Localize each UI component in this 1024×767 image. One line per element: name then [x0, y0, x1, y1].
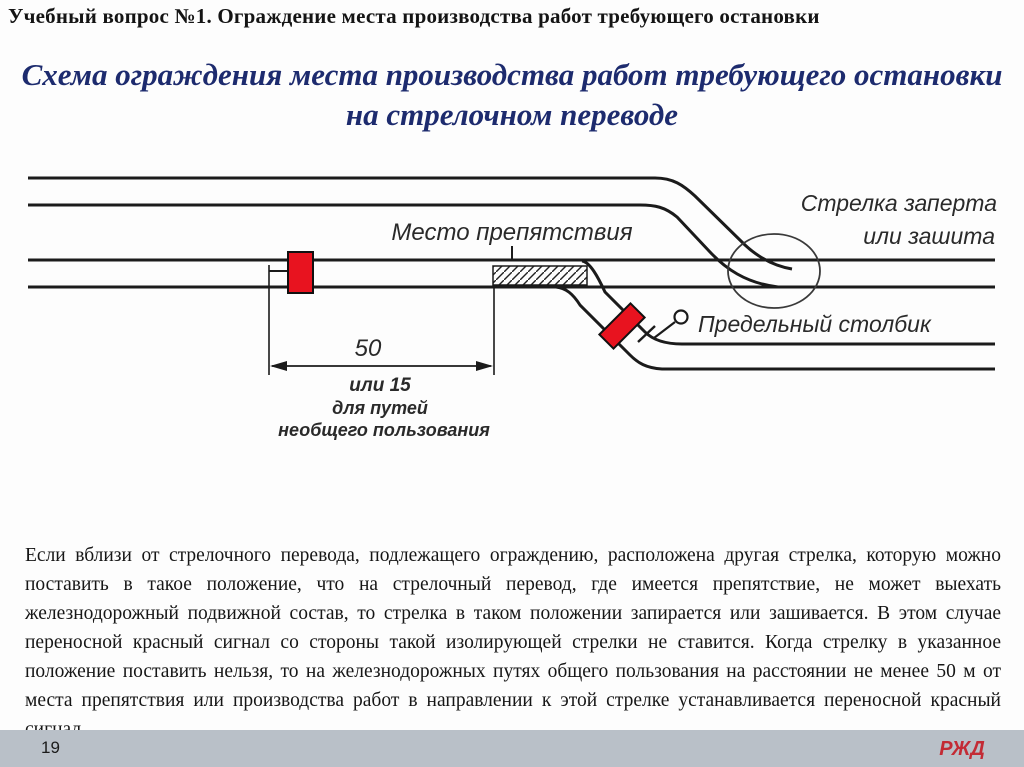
label-alt-15: или 15 — [349, 375, 411, 396]
label-alt-paths: для путей — [332, 398, 428, 418]
label-switch-locked-1: Стрелка заперта — [801, 190, 997, 216]
body-paragraph: Если вблизи от стрелочного перевода, под… — [25, 541, 1001, 723]
label-obstacle: Место препятствия — [391, 219, 632, 246]
slide-title-line2: на стрелочном переводе — [0, 95, 1024, 135]
footer-bar: 19 РЖД — [0, 730, 1024, 767]
slide: Учебный вопрос №1. Ограждение места прои… — [0, 0, 1024, 767]
slide-header: Учебный вопрос №1. Ограждение места прои… — [8, 4, 1008, 29]
rzd-logo-icon: РЖД — [932, 735, 992, 761]
red-signal-icon — [288, 252, 313, 293]
label-alt-nonpublic: необщего пользования — [278, 420, 490, 440]
dimension-arrow-right — [476, 361, 493, 371]
switch-lock-circle — [728, 234, 820, 308]
upper-track-bottom-rail — [28, 205, 778, 287]
label-distance-50: 50 — [355, 335, 382, 362]
limit-post-icon — [675, 311, 688, 324]
page-number: 19 — [41, 738, 60, 758]
rzd-logo-text: РЖД — [939, 738, 985, 760]
label-limit-post: Предельный столбик — [698, 311, 932, 337]
track-scheme-diagram: Место препятствия Стрелка заперта или за… — [0, 150, 1024, 470]
obstacle-hatch-zone — [493, 266, 587, 285]
dimension-arrow-left — [270, 361, 287, 371]
slide-title: Схема ограждения места производства рабо… — [0, 55, 1024, 135]
limit-post-stem — [654, 322, 675, 338]
slide-title-line1: Схема ограждения места производства рабо… — [0, 55, 1024, 95]
label-switch-locked-2: или зашита — [863, 223, 995, 249]
